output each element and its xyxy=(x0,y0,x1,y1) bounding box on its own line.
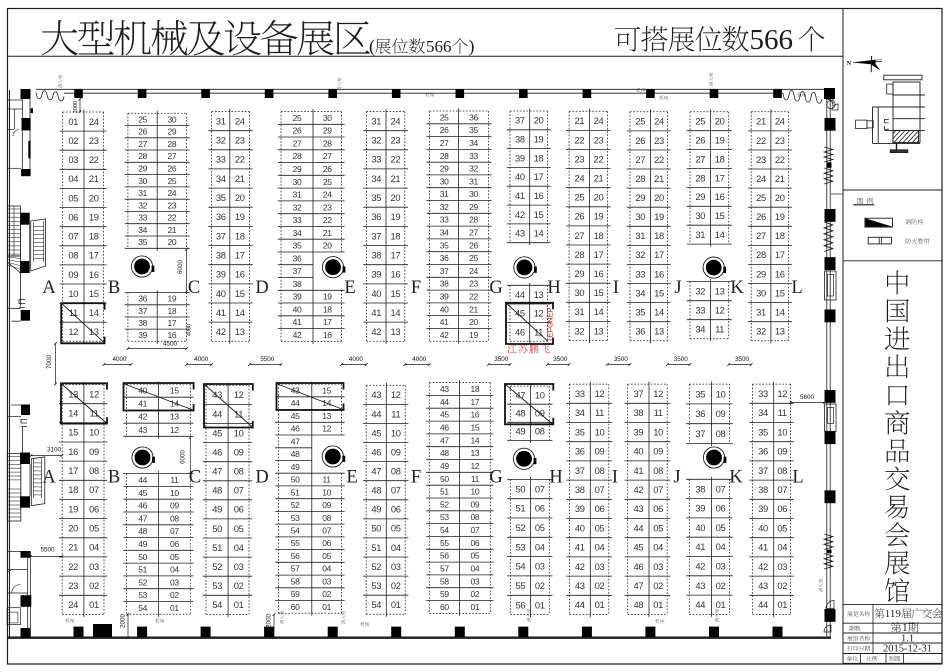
svg-text:05: 05 xyxy=(234,523,244,534)
svg-text:45: 45 xyxy=(212,427,222,438)
svg-text:33: 33 xyxy=(138,213,147,223)
svg-text:17: 17 xyxy=(654,249,664,260)
svg-text:06: 06 xyxy=(716,503,726,514)
svg-text:18: 18 xyxy=(89,231,99,242)
svg-text:01: 01 xyxy=(68,116,78,127)
svg-text:32: 32 xyxy=(635,249,645,260)
svg-text:2015-12-31: 2015-12-31 xyxy=(883,644,932,655)
svg-text:24: 24 xyxy=(235,115,245,126)
svg-text:31: 31 xyxy=(575,306,585,317)
svg-text:10: 10 xyxy=(716,388,726,399)
svg-text:09: 09 xyxy=(68,269,78,280)
svg-text:39: 39 xyxy=(515,152,525,163)
svg-text:20: 20 xyxy=(323,241,332,251)
svg-text:566: 566 xyxy=(750,24,794,56)
svg-text:24: 24 xyxy=(654,116,664,127)
svg-text:03: 03 xyxy=(170,577,179,587)
svg-text:27: 27 xyxy=(756,230,766,241)
svg-text:49: 49 xyxy=(212,504,222,515)
svg-text:56: 56 xyxy=(440,551,449,561)
svg-text:26: 26 xyxy=(440,125,449,135)
svg-text:(: ( xyxy=(369,36,375,57)
svg-text:11: 11 xyxy=(323,475,332,485)
svg-text:N: N xyxy=(546,317,555,322)
svg-text:45: 45 xyxy=(634,542,644,553)
svg-text:22: 22 xyxy=(391,154,401,165)
svg-text:02: 02 xyxy=(777,580,787,591)
svg-text:02: 02 xyxy=(68,135,78,146)
svg-text:54: 54 xyxy=(212,599,222,610)
svg-text:4000: 4000 xyxy=(349,356,364,363)
svg-text:23: 23 xyxy=(756,154,766,165)
svg-text:20: 20 xyxy=(594,192,604,203)
svg-text:19: 19 xyxy=(715,135,725,146)
svg-text:50: 50 xyxy=(291,475,300,485)
svg-text:20: 20 xyxy=(654,192,664,203)
svg-text:03: 03 xyxy=(234,561,244,572)
svg-text:J: J xyxy=(673,468,680,488)
svg-text:27: 27 xyxy=(323,151,332,161)
svg-text:26: 26 xyxy=(323,164,332,174)
svg-text:15: 15 xyxy=(534,209,544,220)
svg-text:45: 45 xyxy=(138,488,147,498)
svg-text:28: 28 xyxy=(575,249,585,260)
svg-text:22: 22 xyxy=(756,135,766,146)
svg-text:119: 119 xyxy=(885,608,902,620)
svg-text:25: 25 xyxy=(323,177,332,187)
svg-text:24: 24 xyxy=(756,173,766,184)
svg-text:57: 57 xyxy=(291,564,300,574)
svg-text:35: 35 xyxy=(293,241,302,251)
svg-text:12: 12 xyxy=(170,425,179,435)
svg-text:41: 41 xyxy=(138,399,147,409)
svg-text:36: 36 xyxy=(440,253,449,263)
svg-text:32: 32 xyxy=(756,326,766,337)
svg-text:21: 21 xyxy=(89,173,99,184)
svg-text:46: 46 xyxy=(291,424,300,434)
svg-text:46: 46 xyxy=(138,501,147,511)
svg-text:12: 12 xyxy=(89,388,99,399)
svg-text:27: 27 xyxy=(575,230,585,241)
svg-text:13: 13 xyxy=(322,411,331,421)
svg-text:17: 17 xyxy=(323,317,332,327)
svg-text:02: 02 xyxy=(89,580,99,591)
svg-text:54: 54 xyxy=(516,561,526,572)
svg-text:07: 07 xyxy=(716,483,726,494)
svg-text:17: 17 xyxy=(775,249,785,260)
svg-text:C: C xyxy=(189,468,201,488)
svg-text:12: 12 xyxy=(68,326,78,337)
svg-text:36: 36 xyxy=(138,294,147,304)
svg-text:42: 42 xyxy=(575,561,585,572)
svg-text:37: 37 xyxy=(758,465,768,476)
svg-text:D: D xyxy=(255,468,268,488)
svg-text:05: 05 xyxy=(89,523,99,534)
svg-text:41: 41 xyxy=(440,317,449,327)
svg-text:15: 15 xyxy=(471,423,480,433)
svg-text:E: E xyxy=(346,468,357,488)
svg-text:46: 46 xyxy=(371,446,381,457)
svg-text:23: 23 xyxy=(654,135,664,146)
svg-text:25: 25 xyxy=(575,192,585,203)
svg-text:01: 01 xyxy=(170,603,179,613)
svg-text:20: 20 xyxy=(775,192,785,203)
svg-text:50: 50 xyxy=(138,552,147,562)
svg-text:51: 51 xyxy=(371,542,381,553)
svg-text:19: 19 xyxy=(469,330,478,340)
svg-text:25: 25 xyxy=(756,192,766,203)
svg-text:58: 58 xyxy=(291,576,300,586)
svg-text:10: 10 xyxy=(595,426,605,437)
svg-text:26: 26 xyxy=(635,135,645,146)
svg-text:09: 09 xyxy=(716,408,726,419)
svg-text:I: I xyxy=(612,468,618,488)
svg-text:10: 10 xyxy=(777,426,787,437)
svg-text:35: 35 xyxy=(440,240,449,250)
svg-text:08: 08 xyxy=(653,465,663,476)
svg-text:39: 39 xyxy=(695,503,705,514)
svg-text:25: 25 xyxy=(635,116,645,127)
svg-text:07: 07 xyxy=(170,526,179,536)
svg-text:3500: 3500 xyxy=(494,356,509,363)
svg-text:2000: 2000 xyxy=(73,101,79,113)
svg-text:36: 36 xyxy=(469,112,478,122)
svg-text:37: 37 xyxy=(515,115,525,126)
svg-text:04: 04 xyxy=(391,542,401,553)
svg-text:20: 20 xyxy=(68,523,78,534)
svg-text:02: 02 xyxy=(322,589,331,599)
svg-text:11: 11 xyxy=(595,407,604,418)
svg-text:30: 30 xyxy=(440,176,449,186)
svg-text:26: 26 xyxy=(293,126,302,136)
svg-text:05: 05 xyxy=(391,523,401,534)
svg-text:L: L xyxy=(792,468,803,488)
svg-text:02: 02 xyxy=(391,580,401,591)
svg-text:20: 20 xyxy=(534,115,544,126)
svg-text:13: 13 xyxy=(594,325,604,336)
svg-text:04: 04 xyxy=(234,542,244,553)
svg-text:03: 03 xyxy=(322,576,331,586)
svg-text:41: 41 xyxy=(695,541,705,552)
svg-text:06: 06 xyxy=(89,503,99,514)
svg-text:16: 16 xyxy=(323,330,332,340)
svg-text:38: 38 xyxy=(371,250,381,261)
svg-text:26: 26 xyxy=(168,164,177,174)
svg-text:33: 33 xyxy=(635,268,645,279)
svg-text:14: 14 xyxy=(471,435,480,445)
svg-text:09: 09 xyxy=(777,446,787,457)
svg-text:54: 54 xyxy=(291,526,300,536)
svg-text:B: B xyxy=(108,468,120,488)
svg-text:19: 19 xyxy=(654,211,664,222)
svg-text:44: 44 xyxy=(138,475,147,485)
svg-text:46: 46 xyxy=(634,561,644,572)
svg-text:30: 30 xyxy=(323,113,332,123)
svg-text:05: 05 xyxy=(535,522,545,533)
svg-text:D: D xyxy=(255,278,268,298)
svg-text:24: 24 xyxy=(323,190,332,200)
svg-text:05: 05 xyxy=(716,522,726,533)
svg-text:13: 13 xyxy=(89,326,99,337)
svg-text:30: 30 xyxy=(756,287,766,298)
svg-text:B: B xyxy=(108,278,120,298)
svg-text:30: 30 xyxy=(635,211,645,222)
svg-text:29: 29 xyxy=(323,126,332,136)
svg-text:31: 31 xyxy=(440,189,449,199)
svg-text:40: 40 xyxy=(293,305,302,315)
svg-text:07: 07 xyxy=(777,484,787,495)
svg-text:19: 19 xyxy=(534,134,544,145)
svg-text:05: 05 xyxy=(471,551,480,561)
svg-text:05: 05 xyxy=(68,192,78,203)
svg-text:14: 14 xyxy=(170,399,179,409)
svg-text:59: 59 xyxy=(440,589,449,599)
svg-text:28: 28 xyxy=(756,249,766,260)
svg-text:13: 13 xyxy=(654,326,664,337)
svg-text:10: 10 xyxy=(89,427,99,438)
svg-text:28: 28 xyxy=(635,173,645,184)
svg-text:16: 16 xyxy=(715,191,725,202)
svg-text:18: 18 xyxy=(323,305,332,315)
svg-text:37: 37 xyxy=(634,388,644,399)
svg-text:37: 37 xyxy=(371,230,381,241)
svg-text:01: 01 xyxy=(595,599,605,610)
svg-text:52: 52 xyxy=(212,561,222,572)
svg-text:22: 22 xyxy=(89,154,99,165)
svg-text:18: 18 xyxy=(775,230,785,241)
svg-text:03: 03 xyxy=(777,561,787,572)
svg-text:10: 10 xyxy=(471,487,480,497)
svg-text:24: 24 xyxy=(68,599,78,610)
svg-text:16: 16 xyxy=(89,269,99,280)
svg-text:47: 47 xyxy=(291,436,300,446)
svg-text:44: 44 xyxy=(212,408,222,419)
svg-text:6000: 6000 xyxy=(180,450,187,465)
svg-text:43: 43 xyxy=(371,389,381,400)
svg-text:10: 10 xyxy=(234,427,244,438)
svg-text:01: 01 xyxy=(716,599,726,610)
svg-text:11: 11 xyxy=(471,474,480,484)
svg-text:16: 16 xyxy=(775,268,785,279)
svg-text:30: 30 xyxy=(575,287,585,298)
svg-text:06: 06 xyxy=(471,538,480,548)
svg-text:28: 28 xyxy=(138,151,147,161)
svg-text:22: 22 xyxy=(168,213,177,223)
svg-text:22: 22 xyxy=(575,134,585,145)
svg-text:49: 49 xyxy=(138,539,147,549)
svg-text:27: 27 xyxy=(138,139,147,149)
svg-text:10: 10 xyxy=(535,390,545,401)
svg-text:22: 22 xyxy=(469,292,478,302)
svg-text:4000: 4000 xyxy=(112,356,127,363)
svg-text:36: 36 xyxy=(216,211,226,222)
svg-text:07: 07 xyxy=(595,484,605,495)
svg-text:30: 30 xyxy=(138,176,147,186)
svg-text:42: 42 xyxy=(138,412,147,422)
svg-text:44: 44 xyxy=(695,599,705,610)
svg-text:30: 30 xyxy=(469,189,478,199)
svg-text:10: 10 xyxy=(653,426,663,437)
svg-text:04: 04 xyxy=(170,565,179,575)
svg-text:21: 21 xyxy=(654,173,664,184)
svg-text:01: 01 xyxy=(653,599,663,610)
svg-text:27: 27 xyxy=(695,153,705,164)
svg-text:22: 22 xyxy=(323,215,332,225)
svg-text:09: 09 xyxy=(170,501,179,511)
svg-text:I: I xyxy=(546,339,555,341)
svg-text:24: 24 xyxy=(168,188,177,198)
svg-text:01: 01 xyxy=(89,599,99,610)
svg-text:566: 566 xyxy=(426,37,452,56)
svg-text:13: 13 xyxy=(170,412,179,422)
svg-text:07: 07 xyxy=(535,483,545,494)
svg-text:44: 44 xyxy=(634,522,644,533)
svg-text:33: 33 xyxy=(293,215,302,225)
svg-text:01: 01 xyxy=(471,602,480,612)
svg-text:19: 19 xyxy=(168,294,177,304)
svg-text:39: 39 xyxy=(634,426,644,437)
svg-text:35: 35 xyxy=(216,192,226,203)
svg-text:08: 08 xyxy=(234,466,244,477)
svg-text:47: 47 xyxy=(212,466,222,477)
svg-text:11: 11 xyxy=(69,307,78,318)
svg-text:15: 15 xyxy=(391,288,401,299)
svg-text:47: 47 xyxy=(371,466,381,477)
svg-text:08: 08 xyxy=(471,512,480,522)
svg-text:15: 15 xyxy=(715,210,725,221)
svg-text:15: 15 xyxy=(775,287,785,298)
svg-text:21: 21 xyxy=(323,228,332,238)
svg-text:05: 05 xyxy=(777,522,787,533)
svg-text:11: 11 xyxy=(654,407,663,418)
svg-text:21: 21 xyxy=(594,173,604,184)
svg-text:40: 40 xyxy=(216,288,226,299)
svg-text:15: 15 xyxy=(170,386,179,396)
svg-text:53: 53 xyxy=(440,512,449,522)
svg-text:17: 17 xyxy=(594,249,604,260)
svg-text:35: 35 xyxy=(138,237,147,247)
svg-text:J: J xyxy=(674,278,681,298)
svg-text:12: 12 xyxy=(322,424,331,434)
svg-text:15: 15 xyxy=(68,427,78,438)
svg-text:48: 48 xyxy=(634,599,644,610)
svg-text:4500: 4500 xyxy=(163,341,178,348)
svg-text:53: 53 xyxy=(291,513,300,523)
svg-text:06: 06 xyxy=(535,503,545,514)
svg-text:17: 17 xyxy=(68,465,78,476)
svg-text:G: G xyxy=(489,278,502,298)
svg-text:50: 50 xyxy=(516,483,526,494)
svg-text:19: 19 xyxy=(68,503,78,514)
svg-text:23: 23 xyxy=(575,153,585,164)
svg-text:01: 01 xyxy=(777,599,787,610)
svg-text:16: 16 xyxy=(235,269,245,280)
svg-text:A: A xyxy=(42,278,56,298)
svg-text:03: 03 xyxy=(89,561,99,572)
svg-text:2000: 2000 xyxy=(266,614,273,629)
svg-text:1: 1 xyxy=(902,622,908,634)
svg-text:40: 40 xyxy=(634,446,644,457)
svg-text:3500: 3500 xyxy=(614,356,629,363)
svg-text:17: 17 xyxy=(534,171,544,182)
svg-text:48: 48 xyxy=(138,526,147,536)
svg-text:39: 39 xyxy=(575,503,585,514)
svg-text:38: 38 xyxy=(634,407,644,418)
svg-text:43: 43 xyxy=(440,384,449,394)
svg-text:18: 18 xyxy=(534,152,544,163)
svg-text:60: 60 xyxy=(291,602,300,612)
svg-text:48: 48 xyxy=(212,485,222,496)
svg-text:56: 56 xyxy=(291,551,300,561)
svg-text:38: 38 xyxy=(138,318,147,328)
svg-text:43: 43 xyxy=(695,580,705,591)
svg-text:18: 18 xyxy=(715,153,725,164)
svg-text:13: 13 xyxy=(235,326,245,337)
svg-text:21: 21 xyxy=(775,173,785,184)
svg-text:19: 19 xyxy=(391,211,401,222)
svg-text:35: 35 xyxy=(758,426,768,437)
svg-text:20: 20 xyxy=(235,192,245,203)
svg-text:33: 33 xyxy=(575,388,585,399)
svg-text:02: 02 xyxy=(170,590,179,600)
svg-text:40: 40 xyxy=(695,522,705,533)
svg-text:32: 32 xyxy=(469,164,478,174)
svg-text:10: 10 xyxy=(391,427,401,438)
svg-text:41: 41 xyxy=(216,307,226,318)
svg-text:48: 48 xyxy=(291,449,300,459)
svg-text:39: 39 xyxy=(440,292,449,302)
svg-text:20: 20 xyxy=(715,116,725,127)
svg-text:4000: 4000 xyxy=(412,356,427,363)
svg-text:24: 24 xyxy=(391,115,401,126)
svg-text:31: 31 xyxy=(469,176,478,186)
svg-text:02: 02 xyxy=(535,580,545,591)
svg-text:42: 42 xyxy=(758,561,768,572)
svg-text:23: 23 xyxy=(775,135,785,146)
svg-text:38: 38 xyxy=(216,250,226,261)
svg-text:14: 14 xyxy=(715,229,725,240)
svg-text:40: 40 xyxy=(575,522,585,533)
svg-text:53: 53 xyxy=(212,580,222,591)
svg-text:45: 45 xyxy=(440,410,449,420)
svg-text:39: 39 xyxy=(138,330,147,340)
svg-text:23: 23 xyxy=(235,135,245,146)
svg-text:23: 23 xyxy=(68,580,78,591)
svg-text:53: 53 xyxy=(371,580,381,591)
svg-text:08: 08 xyxy=(68,250,78,261)
svg-text:27: 27 xyxy=(168,151,177,161)
svg-text:31: 31 xyxy=(216,115,226,126)
svg-text:20: 20 xyxy=(469,317,478,327)
svg-text:21: 21 xyxy=(756,116,766,127)
svg-text:03: 03 xyxy=(653,561,663,572)
svg-text:29: 29 xyxy=(695,191,705,202)
svg-text:32: 32 xyxy=(293,202,302,212)
svg-text:04: 04 xyxy=(777,542,787,553)
svg-text:N: N xyxy=(846,60,851,67)
svg-text:16: 16 xyxy=(471,410,480,420)
svg-text:10: 10 xyxy=(322,487,331,497)
svg-text:26: 26 xyxy=(695,135,705,146)
svg-text:17: 17 xyxy=(235,250,245,261)
svg-text:05: 05 xyxy=(170,552,179,562)
svg-text:38: 38 xyxy=(440,279,449,289)
svg-text:42: 42 xyxy=(293,330,302,340)
svg-text:52: 52 xyxy=(516,522,526,533)
svg-text:50: 50 xyxy=(440,474,449,484)
svg-text:14: 14 xyxy=(235,307,245,318)
svg-text:16: 16 xyxy=(68,446,78,457)
